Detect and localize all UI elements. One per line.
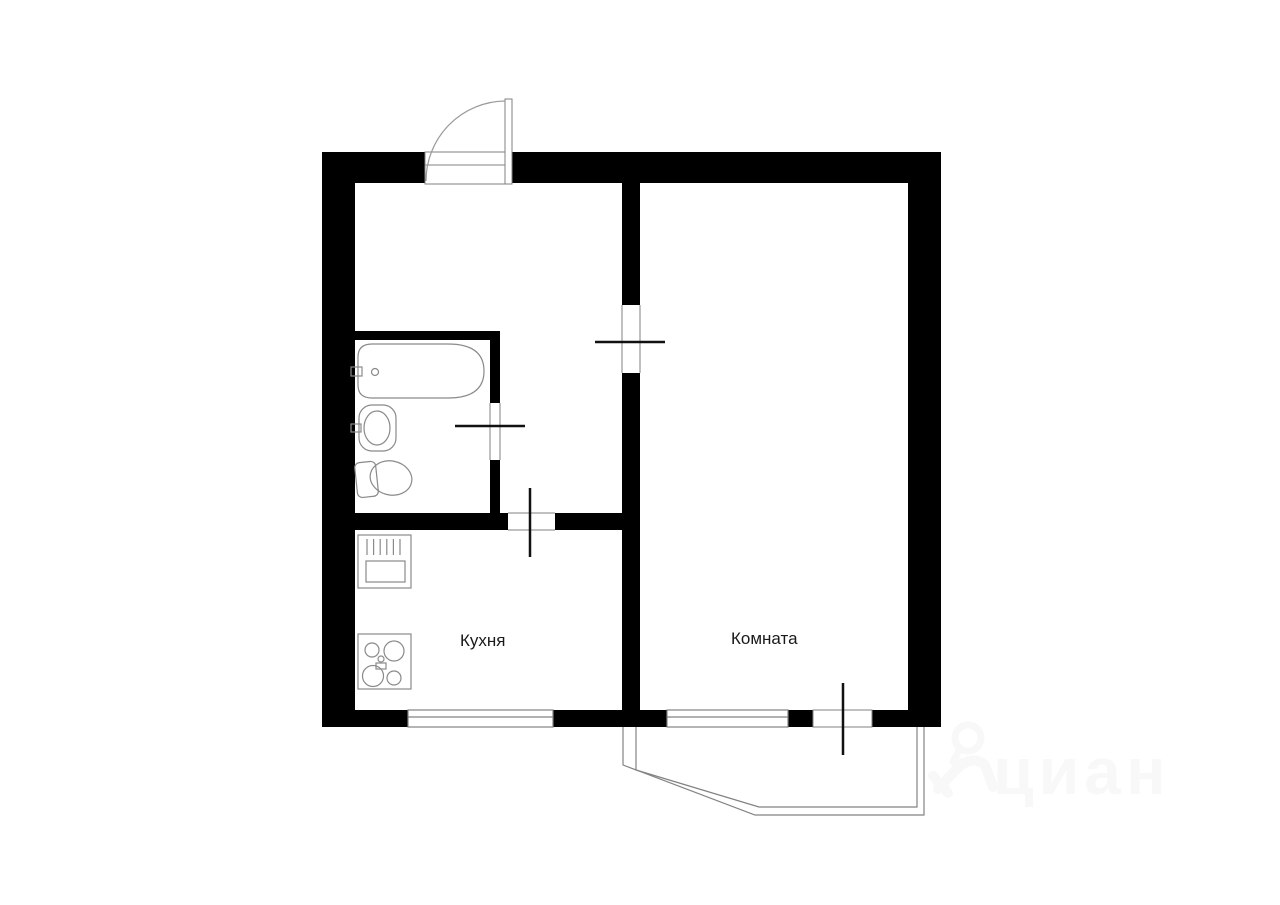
bathroom-door-opening-edges bbox=[490, 403, 500, 460]
balcony-inner-line bbox=[636, 727, 917, 807]
wall-left bbox=[322, 152, 355, 727]
bathroom-fixtures bbox=[351, 344, 484, 499]
wash-basin-icon bbox=[351, 405, 396, 451]
balcony-outer-line bbox=[623, 727, 924, 815]
wall-interior-vertical-top bbox=[622, 183, 640, 305]
kitchen-door-opening-edges bbox=[508, 513, 555, 530]
wall-bathroom-right-bottom bbox=[490, 460, 500, 513]
wall-kitchen-top-seg1 bbox=[355, 513, 508, 530]
wall-kitchen-top-seg2 bbox=[555, 513, 622, 530]
opening-edges bbox=[490, 305, 872, 727]
wall-bathroom-top bbox=[355, 331, 500, 340]
wall-bottom-seg4 bbox=[872, 710, 941, 727]
room-label: Комната bbox=[731, 629, 798, 648]
balcony-outline bbox=[623, 727, 924, 815]
bathtub-icon bbox=[351, 344, 484, 398]
kitchen-window bbox=[408, 710, 553, 727]
wall-top-right bbox=[512, 152, 941, 183]
entrance-door-icon bbox=[425, 99, 512, 184]
watermark: циан bbox=[933, 725, 1171, 808]
kitchen-label: Кухня bbox=[460, 631, 506, 650]
kitchen-fixtures bbox=[358, 535, 411, 689]
room-window bbox=[667, 710, 788, 727]
entrance-door-leaf bbox=[505, 99, 512, 184]
floor-plan-drawing: циан bbox=[0, 0, 1280, 905]
door-leaves bbox=[455, 342, 843, 755]
wall-right bbox=[908, 152, 941, 727]
stove-icon bbox=[358, 634, 411, 689]
walls bbox=[322, 152, 941, 727]
entrance-opening bbox=[425, 152, 512, 184]
watermark-pin-icon bbox=[933, 725, 993, 793]
toilet-icon bbox=[354, 457, 415, 499]
wall-interior-vertical-bottom bbox=[622, 373, 640, 710]
wall-bottom-seg2 bbox=[553, 710, 667, 727]
wall-bottom-seg1 bbox=[322, 710, 408, 727]
room-door-opening-edges bbox=[622, 305, 640, 373]
watermark-brand-text: циан bbox=[993, 734, 1171, 808]
wall-bathroom-right-top bbox=[490, 331, 500, 403]
wall-bottom-seg3 bbox=[788, 710, 813, 727]
kitchen-sink-icon bbox=[358, 535, 411, 588]
floor-plan-page: циан bbox=[0, 0, 1280, 905]
